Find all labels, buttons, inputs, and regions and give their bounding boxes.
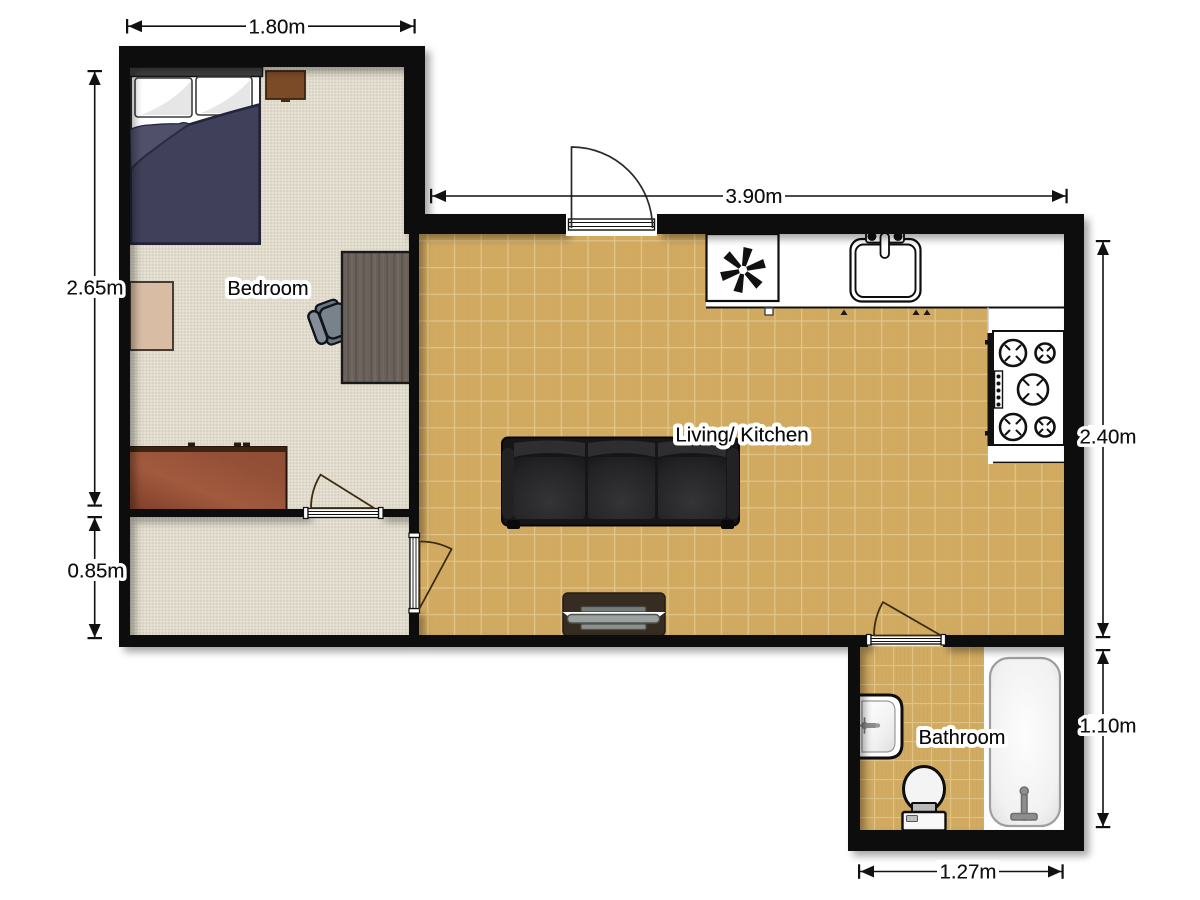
svg-text:1.10m: 1.10m [1080, 715, 1137, 738]
svg-text:0.85m: 0.85m [68, 560, 125, 583]
svg-text:2.40m: 2.40m [1080, 426, 1137, 449]
svg-text:3.90m: 3.90m [726, 185, 783, 208]
svg-text:1.27m: 1.27m [940, 861, 997, 884]
svg-text:2.65m: 2.65m [67, 277, 124, 300]
svg-text:Bathroom: Bathroom [919, 727, 1006, 749]
svg-text:Bedroom: Bedroom [227, 278, 308, 300]
svg-text:Living/ Kitchen: Living/ Kitchen [675, 424, 808, 447]
svg-text:1.80m: 1.80m [249, 16, 306, 39]
